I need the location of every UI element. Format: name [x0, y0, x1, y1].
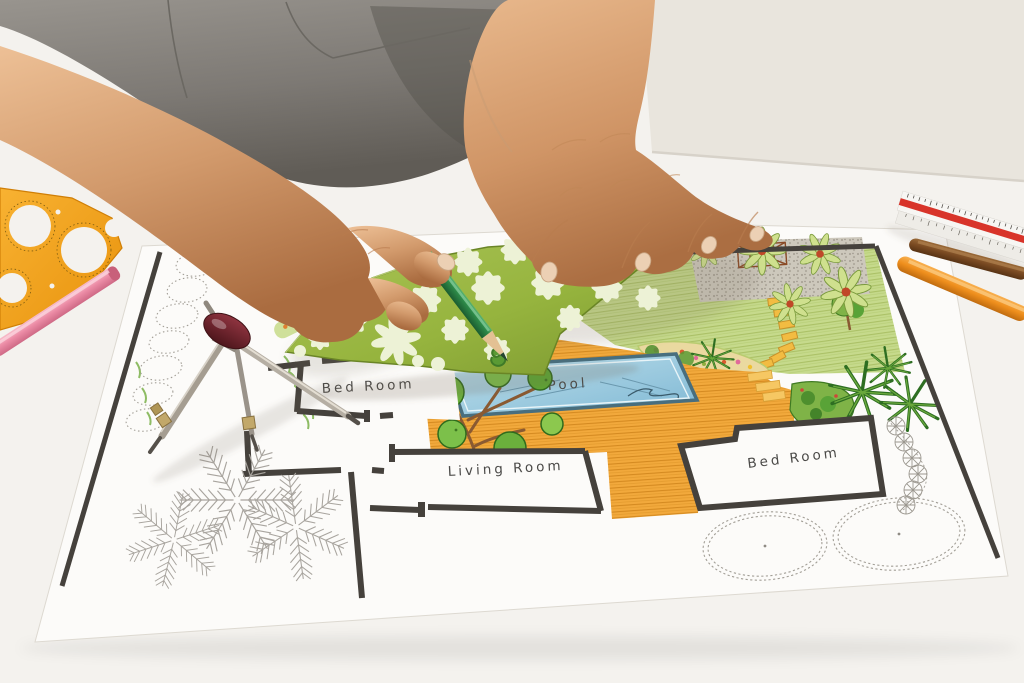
wall-background	[640, 0, 1024, 181]
photo-landscape-designer-desk: Pool Bed Room	[0, 0, 1024, 683]
paper-shadow	[20, 636, 1020, 660]
